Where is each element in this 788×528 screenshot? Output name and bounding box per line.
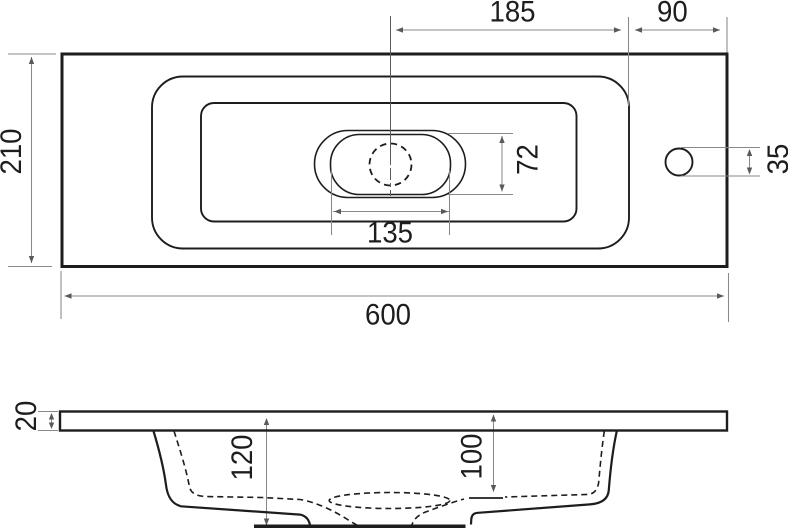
svg-text:210: 210: [0, 128, 28, 174]
svg-text:72: 72: [511, 144, 544, 175]
svg-text:600: 600: [365, 298, 411, 331]
svg-text:90: 90: [657, 0, 688, 29]
svg-text:35: 35: [762, 144, 788, 175]
svg-text:185: 185: [489, 0, 535, 29]
svg-text:120: 120: [226, 434, 259, 480]
svg-text:20: 20: [10, 401, 43, 432]
svg-text:135: 135: [367, 216, 413, 249]
svg-text:100: 100: [455, 433, 488, 479]
